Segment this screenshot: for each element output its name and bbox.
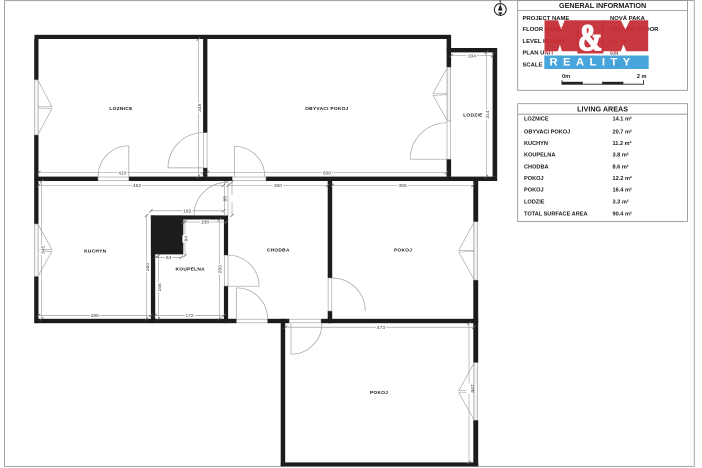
svg-text:POKOJ: POKOJ [394,248,412,254]
svg-text:KOUPELNA: KOUPELNA [524,153,555,159]
svg-text:182: 182 [183,209,191,215]
svg-text:2 m: 2 m [637,74,647,80]
svg-text:11.2 m²: 11.2 m² [613,140,632,147]
svg-text:OBYVACI POKOJ: OBYVACI POKOJ [305,106,349,112]
svg-text:0m: 0m [562,74,570,80]
svg-text:20.7 m²: 20.7 m² [613,128,632,135]
svg-text:355: 355 [399,183,407,189]
svg-text:12.2 m²: 12.2 m² [613,175,632,182]
svg-text:8.6 m²: 8.6 m² [613,163,629,170]
svg-text:462: 462 [133,183,141,189]
svg-text:LODZIE: LODZIE [524,199,545,205]
svg-text:473: 473 [377,325,385,331]
svg-text:314: 314 [485,110,491,118]
svg-text:POKOJ: POKOJ [524,188,544,194]
svg-text:CHODBA: CHODBA [524,164,549,170]
svg-text:KOUPELNA: KOUPELNA [176,267,206,273]
svg-text:172: 172 [185,313,193,319]
svg-text:250: 250 [217,265,223,273]
svg-text:SCALE: SCALE [523,62,543,68]
svg-text:345: 345 [40,246,46,254]
svg-text:3.3 m²: 3.3 m² [613,198,629,205]
svg-text:104: 104 [468,53,476,59]
svg-text:LIVING AREAS: LIVING AREAS [577,105,628,114]
svg-text:CHODBA: CHODBA [267,248,290,254]
svg-text:TOTAL SURFACE AREA: TOTAL SURFACE AREA [524,211,588,217]
svg-text:347: 347 [470,384,476,392]
svg-text:POKOJ: POKOJ [370,390,388,396]
svg-text:345: 345 [197,103,203,111]
svg-text:250: 250 [274,183,282,189]
svg-text:108: 108 [201,220,209,226]
svg-text:POKOJ: POKOJ [524,176,544,182]
svg-text:LOZNICE: LOZNICE [524,116,549,122]
svg-text:LODZIE: LODZIE [463,113,483,119]
svg-text:3.8 m²: 3.8 m² [613,152,629,159]
svg-text:OBYVACI POKOJ: OBYVACI POKOJ [524,129,570,135]
svg-text:LOZNICE: LOZNICE [109,106,133,112]
svg-text:GENERAL INFORMATION: GENERAL INFORMATION [559,1,646,10]
svg-text:600: 600 [323,170,331,176]
svg-text:KUCHYN: KUCHYN [524,141,548,147]
svg-text:280: 280 [91,313,99,319]
svg-text:260: 260 [145,263,151,271]
svg-text:16.4 m²: 16.4 m² [613,187,632,194]
svg-text:410: 410 [118,170,126,176]
svg-text:85: 85 [223,196,229,202]
svg-text:KUCHYN: KUCHYN [84,248,107,254]
svg-text:166: 166 [157,283,163,291]
svg-text:84: 84 [184,236,190,242]
svg-text:14.1 m²: 14.1 m² [613,115,632,122]
svg-text:&: & [578,18,602,59]
svg-text:90.4 m²: 90.4 m² [613,210,632,217]
svg-text:REALITY: REALITY [550,56,636,68]
svg-text:64: 64 [166,255,172,261]
